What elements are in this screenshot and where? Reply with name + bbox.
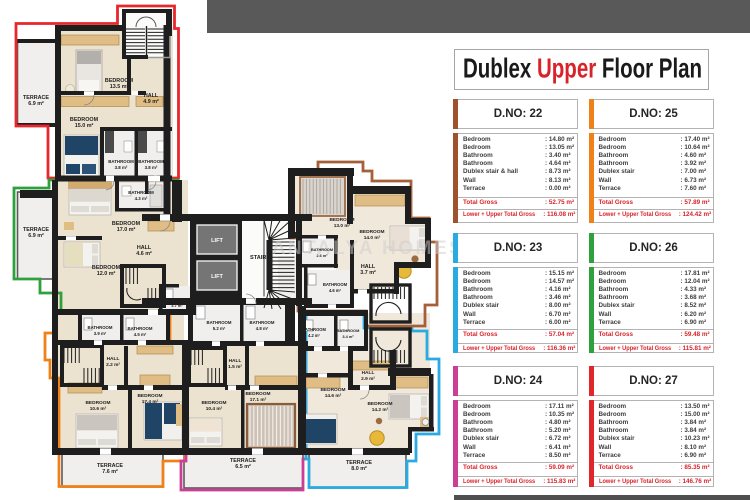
- svg-text:15.0 m²: 15.0 m²: [75, 123, 94, 129]
- svg-text:14.2 m²: 14.2 m²: [372, 407, 389, 413]
- svg-text:LIFT: LIFT: [211, 274, 223, 280]
- svg-text:BEDROOM: BEDROOM: [329, 217, 354, 223]
- svg-text:BATHROOM: BATHROOM: [88, 325, 113, 330]
- svg-text:BATHROOM: BATHROOM: [311, 248, 333, 252]
- svg-text:HALL: HALL: [229, 358, 242, 364]
- svg-text:4.9 m²: 4.9 m²: [143, 99, 159, 105]
- svg-text:BATHROOM: BATHROOM: [108, 159, 134, 164]
- svg-text:6.5 m²: 6.5 m²: [235, 464, 251, 470]
- svg-text:7.6 m²: 7.6 m²: [102, 469, 118, 475]
- svg-text:LIFT: LIFT: [211, 238, 223, 244]
- svg-text:BEDROOM: BEDROOM: [320, 387, 345, 393]
- svg-text:13.0 m²: 13.0 m²: [334, 223, 351, 229]
- svg-text:12.0 m²: 12.0 m²: [97, 271, 116, 277]
- svg-text:6.9 m²: 6.9 m²: [28, 233, 44, 239]
- svg-text:3.7 m²: 3.7 m²: [360, 270, 376, 276]
- svg-text:3.8 m²: 3.8 m²: [145, 165, 158, 170]
- svg-text:4.6 m²: 4.6 m²: [329, 288, 342, 293]
- svg-text:4.3 m²: 4.3 m²: [135, 196, 148, 201]
- svg-text:BEDROOM: BEDROOM: [201, 400, 226, 406]
- svg-text:5.2 m²: 5.2 m²: [213, 326, 226, 331]
- svg-text:2.6 m²: 2.6 m²: [317, 254, 329, 258]
- svg-text:BATHROOM: BATHROOM: [128, 326, 153, 331]
- svg-text:17.4 m²: 17.4 m²: [142, 399, 159, 405]
- svg-text:14.0 m²: 14.0 m²: [364, 235, 381, 241]
- svg-text:BEDROOM: BEDROOM: [85, 400, 110, 406]
- svg-text:BATHROOM: BATHROOM: [165, 297, 189, 302]
- svg-text:10.6 m²: 10.6 m²: [90, 406, 107, 412]
- svg-text:BEDROOM: BEDROOM: [245, 391, 270, 397]
- svg-text:BATHROOM: BATHROOM: [138, 159, 164, 164]
- svg-text:ANTALYA HOMES: ANTALYA HOMES: [272, 238, 465, 259]
- svg-text:3.7 m²: 3.7 m²: [171, 303, 183, 308]
- svg-text:BATHROOM: BATHROOM: [128, 190, 154, 195]
- svg-text:4.2 m²: 4.2 m²: [308, 333, 320, 338]
- svg-text:BATHROOM: BATHROOM: [323, 282, 348, 287]
- svg-text:13.5 m²: 13.5 m²: [110, 84, 129, 90]
- svg-text:17.0 m²: 17.0 m²: [117, 227, 136, 233]
- svg-text:17.1 m²: 17.1 m²: [250, 397, 267, 403]
- svg-text:BEDROOM: BEDROOM: [137, 393, 162, 399]
- svg-text:BEDROOM: BEDROOM: [367, 401, 392, 407]
- svg-text:BEDROOM: BEDROOM: [359, 229, 384, 235]
- svg-text:3.9 m²: 3.9 m²: [94, 331, 107, 336]
- svg-text:HALL: HALL: [362, 370, 375, 376]
- svg-text:4.5 m²: 4.5 m²: [134, 332, 147, 337]
- svg-text:STAIR: STAIR: [250, 255, 266, 261]
- svg-text:1.5 m²: 1.5 m²: [228, 364, 242, 370]
- svg-text:2.9 m²: 2.9 m²: [361, 376, 375, 382]
- svg-text:8.0 m²: 8.0 m²: [351, 466, 367, 472]
- svg-text:BATHROOM: BATHROOM: [250, 320, 275, 325]
- svg-text:10.4 m²: 10.4 m²: [206, 406, 223, 412]
- svg-text:BATHROOM: BATHROOM: [302, 327, 326, 332]
- svg-text:BATHROOM: BATHROOM: [337, 328, 360, 333]
- svg-text:HALL: HALL: [107, 356, 120, 362]
- svg-text:3.8 m²: 3.8 m²: [115, 165, 128, 170]
- svg-text:4.6 m²: 4.6 m²: [136, 251, 152, 257]
- svg-text:4.8 m²: 4.8 m²: [256, 326, 269, 331]
- svg-text:3.4 m²: 3.4 m²: [342, 334, 354, 339]
- svg-text:14.6 m²: 14.6 m²: [325, 393, 342, 399]
- svg-text:6.9 m²: 6.9 m²: [28, 101, 44, 107]
- svg-text:BATHROOM: BATHROOM: [207, 320, 232, 325]
- svg-text:2.2 m²: 2.2 m²: [106, 362, 120, 368]
